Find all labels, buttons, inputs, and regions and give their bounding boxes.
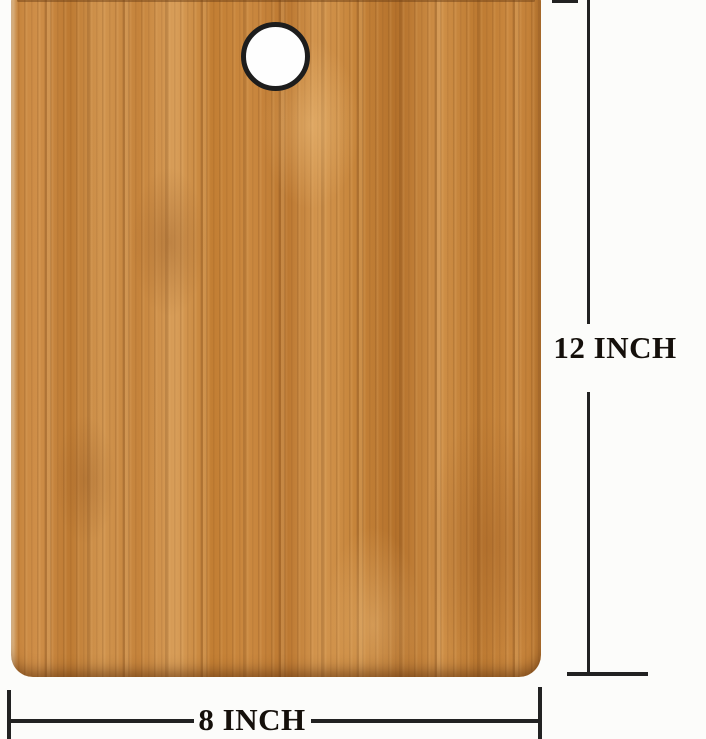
cutting-board [11, 0, 541, 677]
height-dimension-bottom-end-cap [567, 672, 648, 676]
width-dimension-line-right-segment [311, 719, 541, 723]
board-top-edge [17, 0, 535, 2]
width-dimension-left-end-cap [7, 690, 11, 739]
hanging-hole [241, 22, 310, 91]
width-dimension-line-left-segment [8, 719, 194, 723]
width-dimension-right-end-cap [538, 687, 542, 739]
height-dimension-label: 12 INCH [552, 330, 678, 366]
height-dimension-line-upper-segment [587, 0, 590, 324]
height-dimension-line-lower-segment [587, 392, 590, 675]
height-dimension-top-end-cap [552, 0, 578, 3]
product-photo: 12 INCH 8 INCH [0, 0, 706, 739]
width-dimension-label: 8 INCH [192, 702, 312, 738]
